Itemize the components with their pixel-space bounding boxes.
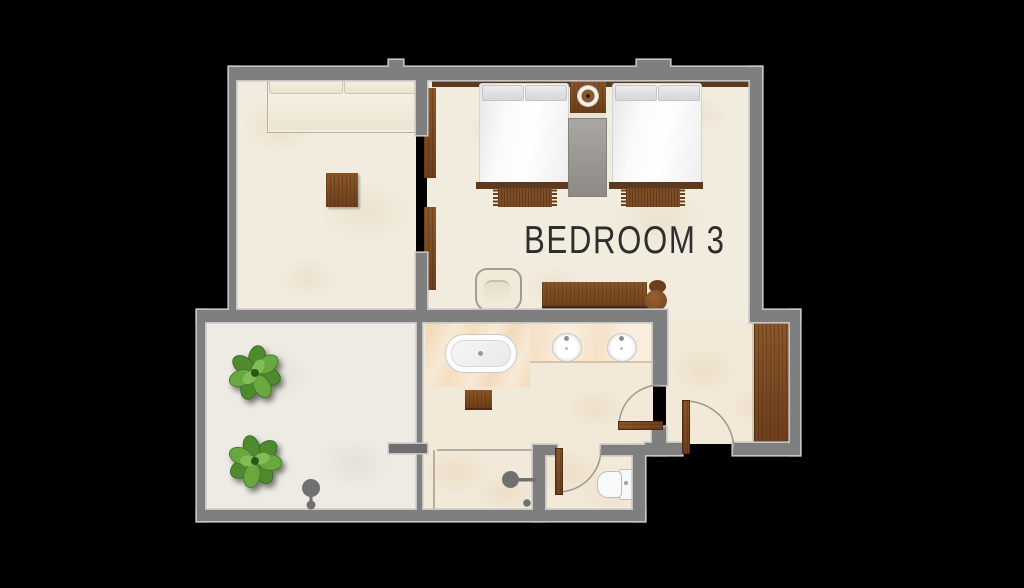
floorplan: BEDROOM 3 [0, 0, 1024, 588]
door-arc [619, 385, 660, 426]
outdoor-shower-icon [302, 479, 320, 510]
sliding-door-icon [389, 444, 427, 453]
door-icon [618, 421, 663, 430]
door-icon [682, 400, 690, 454]
door-arc [558, 449, 601, 492]
room-label: BEDROOM 3 [524, 221, 726, 260]
door-arc [686, 401, 734, 449]
door-swing-arcs [0, 0, 1024, 588]
shower-head-icon [502, 471, 536, 507]
door-icon [555, 448, 563, 495]
